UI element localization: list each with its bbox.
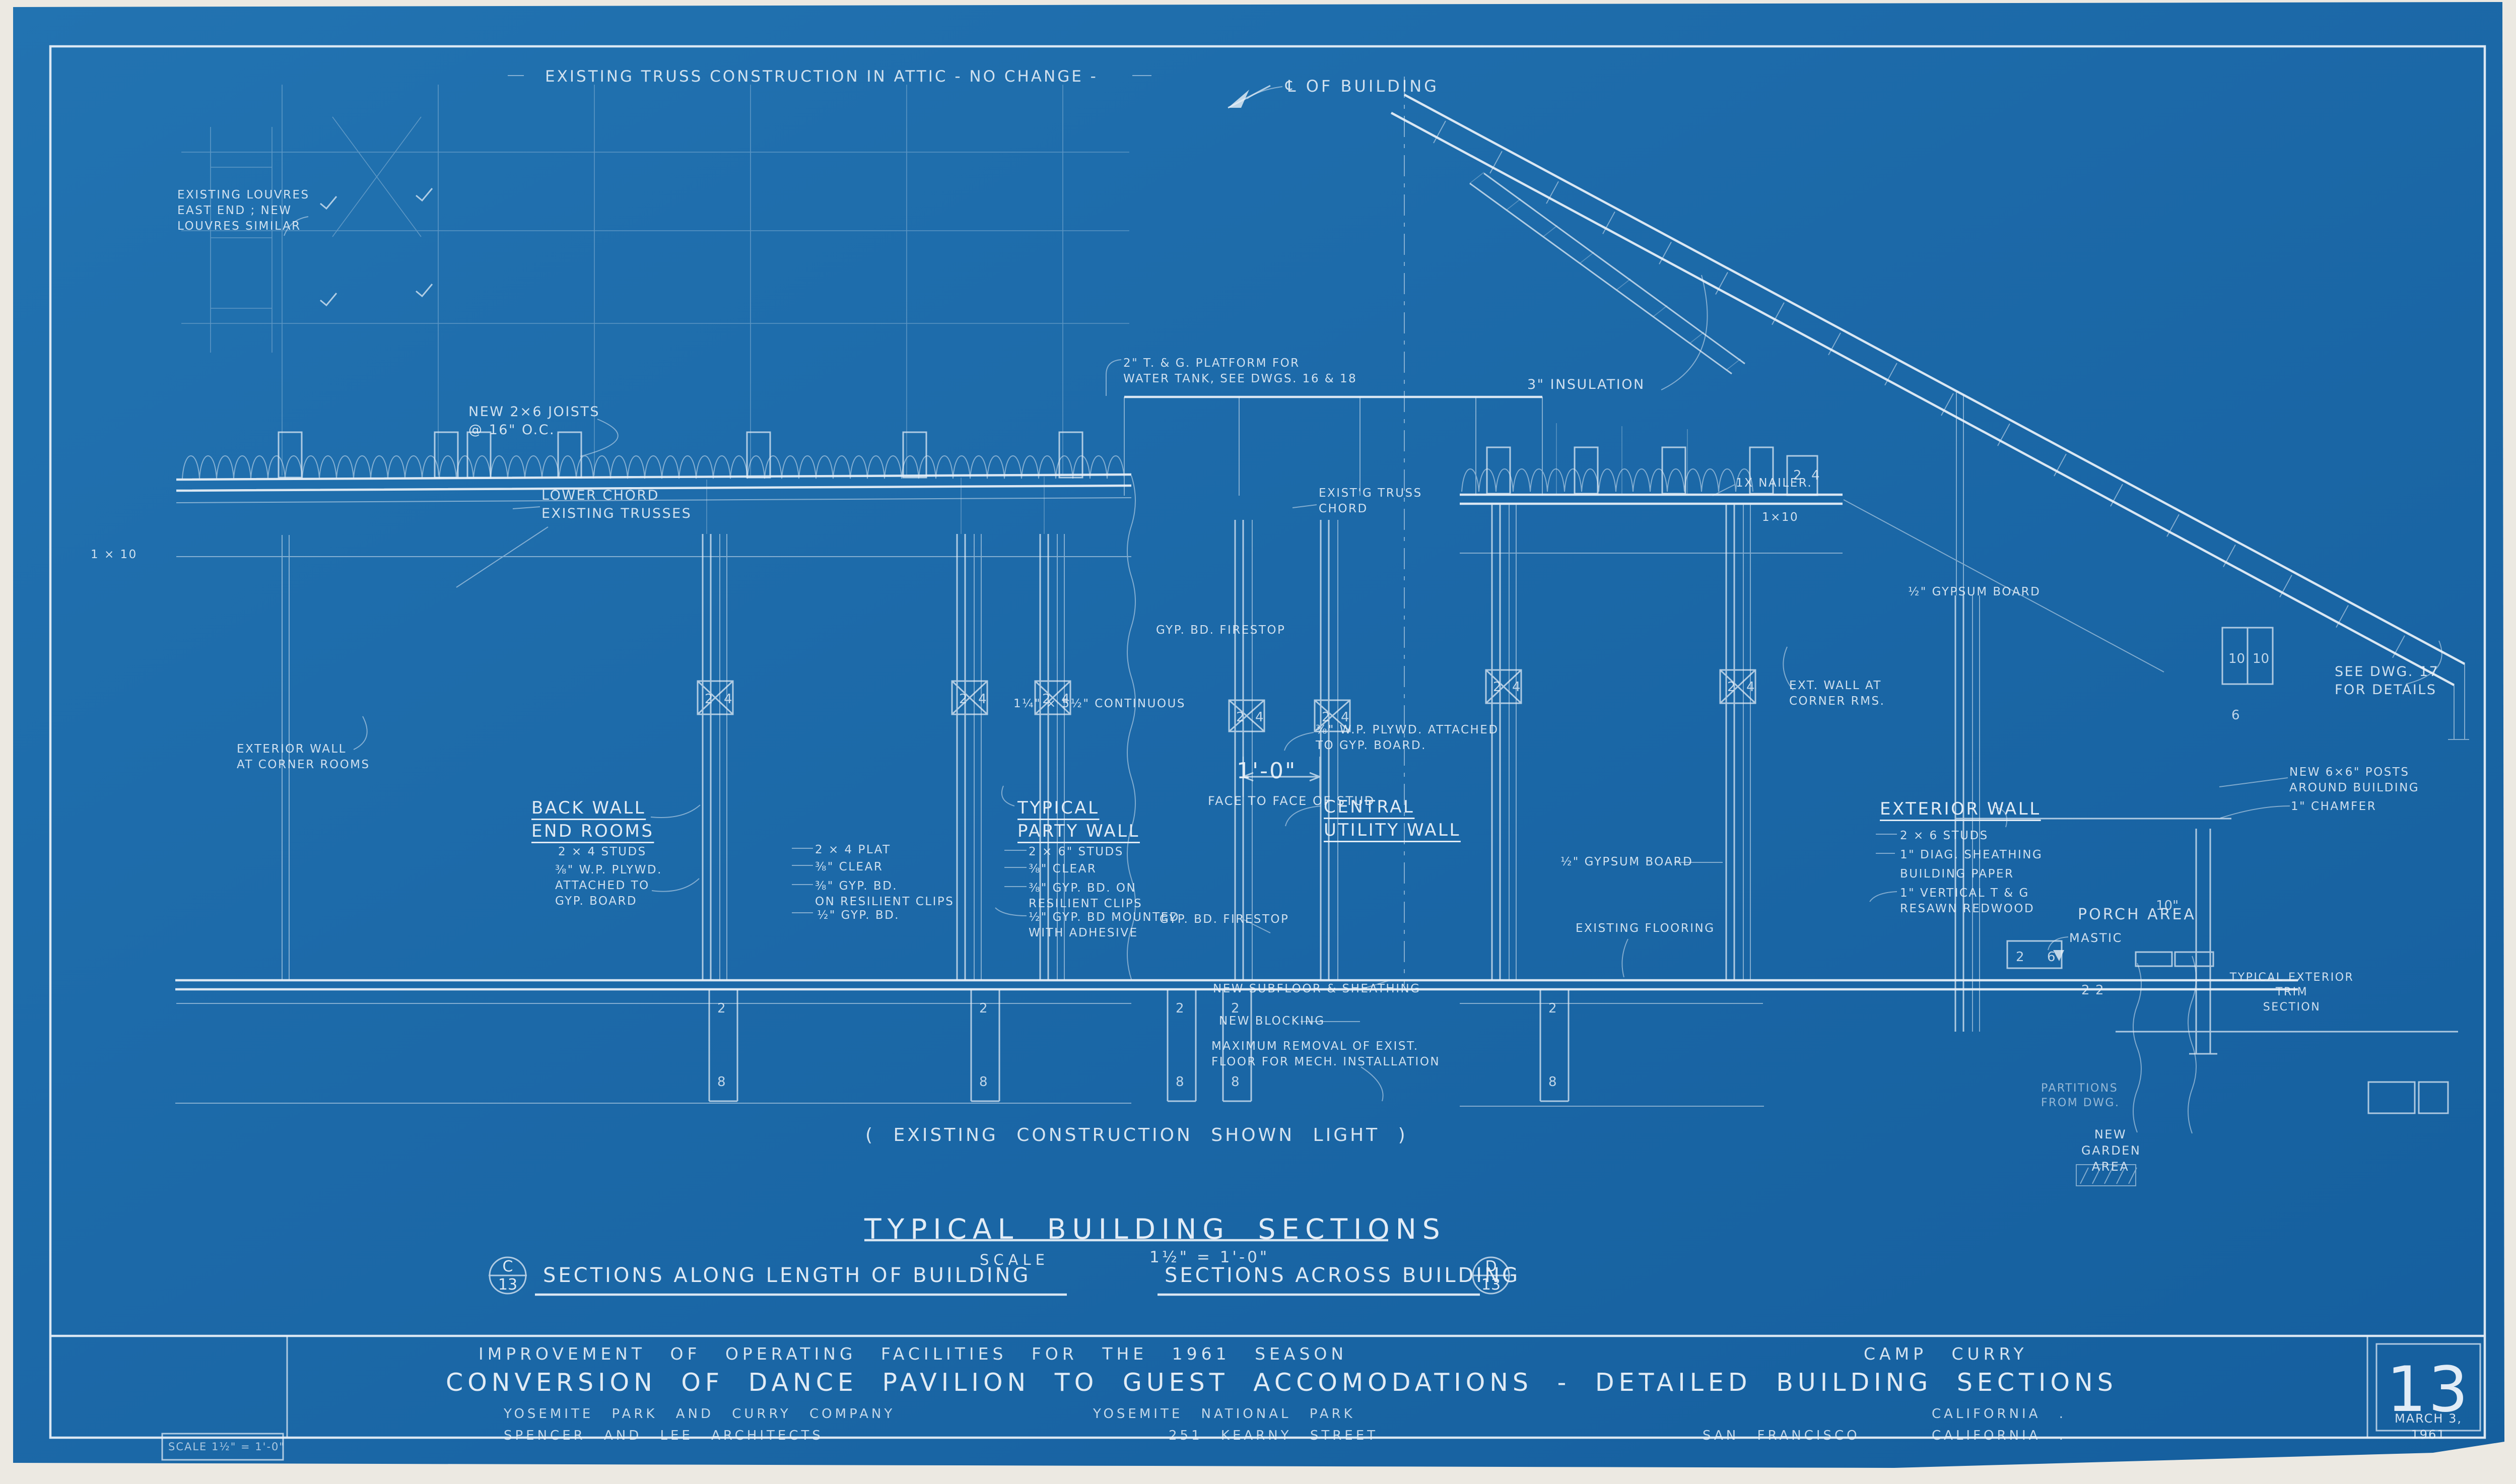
lumber-mark: 4 <box>1811 468 1820 483</box>
camp-curry-label: CAMP CURRY <box>1864 1343 2028 1365</box>
utility-wall-heading: CENTRAL UTILITY WALL <box>1324 796 1461 842</box>
lumber-mark: 2 <box>1727 680 1736 695</box>
mastic-note: MASTIC <box>2069 930 2123 946</box>
exterior-trim-note: TYPICAL EXTERIOR TRIM SECTION <box>2224 970 2360 1015</box>
existing-construction-note: ( EXISTING CONSTRUCTION SHOWN LIGHT ) <box>865 1123 1408 1148</box>
garden-area-label: NEW GARDEN AREA <box>2081 1126 2140 1175</box>
project-improvement-line: IMPROVEMENT OF OPERATING FACILITIES FOR … <box>479 1343 1347 1365</box>
one-by-ten-note-right: 1×10 <box>1762 510 1799 525</box>
party-wall-note-adhesive: ½" GYP. BD MOUNTED WITH ADHESIVE <box>1029 910 1180 941</box>
lumber-mark: 8 <box>979 1074 988 1090</box>
lumber-mark: 4 <box>978 692 987 707</box>
lumber-mark: 2 <box>1236 710 1245 725</box>
owner-company-label: YOSEMITE PARK AND CURRY COMPANY <box>504 1405 895 1423</box>
architects-label: SPENCER AND LEE ARCHITECTS <box>504 1427 824 1445</box>
lumber-mark: 2 <box>2081 983 2090 998</box>
lumber-mark: 4 <box>1255 710 1264 725</box>
see-drawing-note: SEE DWG. 17 FOR DETAILS <box>2335 663 2439 699</box>
existing-flooring-note: EXISTING FLOORING <box>1576 921 1715 936</box>
caption-sections-along: SECTIONS ALONG LENGTH OF BUILDING <box>543 1262 1031 1290</box>
lumber-mark: 2 <box>979 1001 988 1016</box>
firestop-note-lower: GYP. BD. FIRESTOP <box>1160 912 1289 927</box>
party-wall-note-clear: ⅜" CLEAR <box>1029 861 1097 877</box>
lumber-mark: 2 <box>1548 1001 1557 1016</box>
new-posts-note: NEW 6×6" POSTS AROUND BUILDING <box>2289 765 2419 796</box>
gypsum-board-note-right: ½" GYPSUM BOARD <box>1908 584 2041 600</box>
lumber-mark: 4 <box>1512 680 1521 695</box>
insulation-note: 3" INSULATION <box>1527 376 1645 394</box>
nailer-note: 1X NAILER. <box>1736 476 1812 491</box>
lumber-mark: 4 <box>1746 680 1755 695</box>
scale-box-label: SCALE 1½" = 1'-0" <box>168 1440 285 1454</box>
ext-wall-corner-rms-note: EXT. WALL AT CORNER RMS. <box>1789 678 1885 709</box>
porch-area-label: PORCH AREA <box>2078 905 2196 925</box>
lumber-mark: 8 <box>717 1074 726 1090</box>
party-wall-note-studs: 2 × 6" STUDS <box>1029 844 1124 860</box>
city-label: SAN FRANCISCO <box>1703 1427 1860 1445</box>
lumber-mark: 2 <box>1176 1001 1184 1016</box>
state-label-row4: CALIFORNIA . <box>1932 1427 2066 1445</box>
section-marker-left-letter: C <box>503 1258 513 1275</box>
attic-note: EXISTING TRUSS CONSTRUCTION IN ATTIC - N… <box>545 66 1098 88</box>
lumber-mark: 2 <box>959 692 968 707</box>
exterior-wall-note-paper: BUILDING PAPER <box>1900 866 2014 882</box>
plywood-attached-note: ⅜" W.P. PLYWD. ATTACHED TO GYP. BOARD. <box>1316 722 1499 754</box>
exterior-wall-note-sheathing: 1" DIAG. SHEATHING <box>1900 847 2043 863</box>
party-wall-heading: TYPICAL PARTY WALL <box>1017 797 1140 843</box>
caption-sections-across: SECTIONS ACROSS BUILDING <box>1165 1262 1520 1290</box>
lumber-mark: 2 <box>2016 950 2024 965</box>
continuous-member-note: 1¼" × 5½" CONTINUOUS <box>1013 696 1186 712</box>
mid-wall-note-gyp-clips: ⅜" GYP. BD. ON RESILIENT CLIPS <box>815 879 954 910</box>
lumber-mark: 10 <box>2253 651 2269 666</box>
party-wall-note-gyp-clips: ⅜" GYP. BD. ON RESILIENT CLIPS <box>1029 881 1142 912</box>
lumber-mark: 2 <box>705 692 713 707</box>
lumber-mark: 6 <box>2231 708 2240 723</box>
firestop-note-upper: GYP. BD. FIRESTOP <box>1156 623 1285 638</box>
back-wall-note-plywood: ⅜" W.P. PLYWD. ATTACHED TO GYP. BOARD <box>555 862 662 909</box>
lumber-mark: 8 <box>1176 1074 1184 1090</box>
back-wall-heading: BACK WALL END ROOMS <box>531 797 654 843</box>
blocking-note: NEW BLOCKING <box>1219 1014 1325 1029</box>
lumber-mark: 4 <box>724 692 732 707</box>
partitions-note: PARTITIONS FROM DWG. <box>2041 1081 2120 1111</box>
louvres-note: EXISTING LOUVRES EAST END ; NEW LOUVRES … <box>177 187 310 234</box>
chamfer-note: 1" CHAMFER <box>2291 799 2376 815</box>
water-tank-platform-note: 2" T. & G. PLATFORM FOR WATER TANK, SEE … <box>1123 356 1357 387</box>
section-marker-left-number: 13 <box>498 1276 517 1294</box>
lumber-mark: 8 <box>1231 1074 1240 1090</box>
exterior-wall-note-redwood: 1" VERTICAL T & G RESAWN REDWOOD <box>1900 886 2034 917</box>
floor-removal-note: MAXIMUM REMOVAL OF EXIST. FLOOR FOR MECH… <box>1211 1039 1440 1070</box>
dimension-one-foot: 1'-0" <box>1237 757 1297 786</box>
mid-wall-note-plat: 2 × 4 PLAT <box>815 842 891 858</box>
sheet-date: MARCH 3, 1961 <box>2376 1410 2480 1443</box>
one-by-ten-note-left: 1 × 10 <box>91 547 138 563</box>
lower-chord-note: LOWER CHORD EXISTING TRUSSES <box>541 487 692 523</box>
mid-wall-note-clear: ⅜" CLEAR <box>815 859 883 875</box>
park-label: YOSEMITE NATIONAL PARK <box>1093 1405 1355 1423</box>
centerline-label: ℄ OF BUILDING <box>1285 76 1439 97</box>
new-joists-note: NEW 2×6 JOISTS @ 16" O.C. <box>468 403 600 439</box>
street-label: 251 KEARNY STREET <box>1169 1427 1378 1445</box>
gypsum-board-note-center: ½" GYPSUM BOARD <box>1560 854 1693 870</box>
back-wall-note-studs: 2 × 4 STUDS <box>558 844 647 860</box>
lumber-mark: 2 <box>1493 680 1502 695</box>
blueprint-sheet: C 13 D 13 2 4 2 4 2 4 2 4 2 4 2 4 2 4 2 … <box>0 0 2516 1484</box>
lumber-mark: 2 <box>2095 983 2104 998</box>
truss-chord-note: EXIST'G TRUSS CHORD <box>1319 486 1422 517</box>
state-label-row3: CALIFORNIA . <box>1932 1405 2066 1423</box>
subfloor-note: NEW SUBFLOOR & SHEATHING <box>1213 981 1421 997</box>
exterior-wall-note-studs: 2 × 6 STUDS <box>1900 828 1989 844</box>
mid-wall-note-gyp: ½" GYP. BD. <box>817 908 900 923</box>
exterior-wall-heading: EXTERIOR WALL <box>1880 798 2041 821</box>
exterior-wall-corner-rooms-note: EXTERIOR WALL AT CORNER ROOMS <box>237 741 370 773</box>
sheet-title-line: CONVERSION OF DANCE PAVILION TO GUEST AC… <box>446 1366 2118 1399</box>
lumber-mark: 6 <box>2047 950 2056 965</box>
lumber-mark: 2 <box>717 1001 726 1016</box>
lumber-mark: 10 <box>2228 651 2245 666</box>
lumber-mark: 8 <box>1548 1074 1557 1090</box>
drawing-title: TYPICAL BUILDING SECTIONS <box>864 1211 1446 1248</box>
